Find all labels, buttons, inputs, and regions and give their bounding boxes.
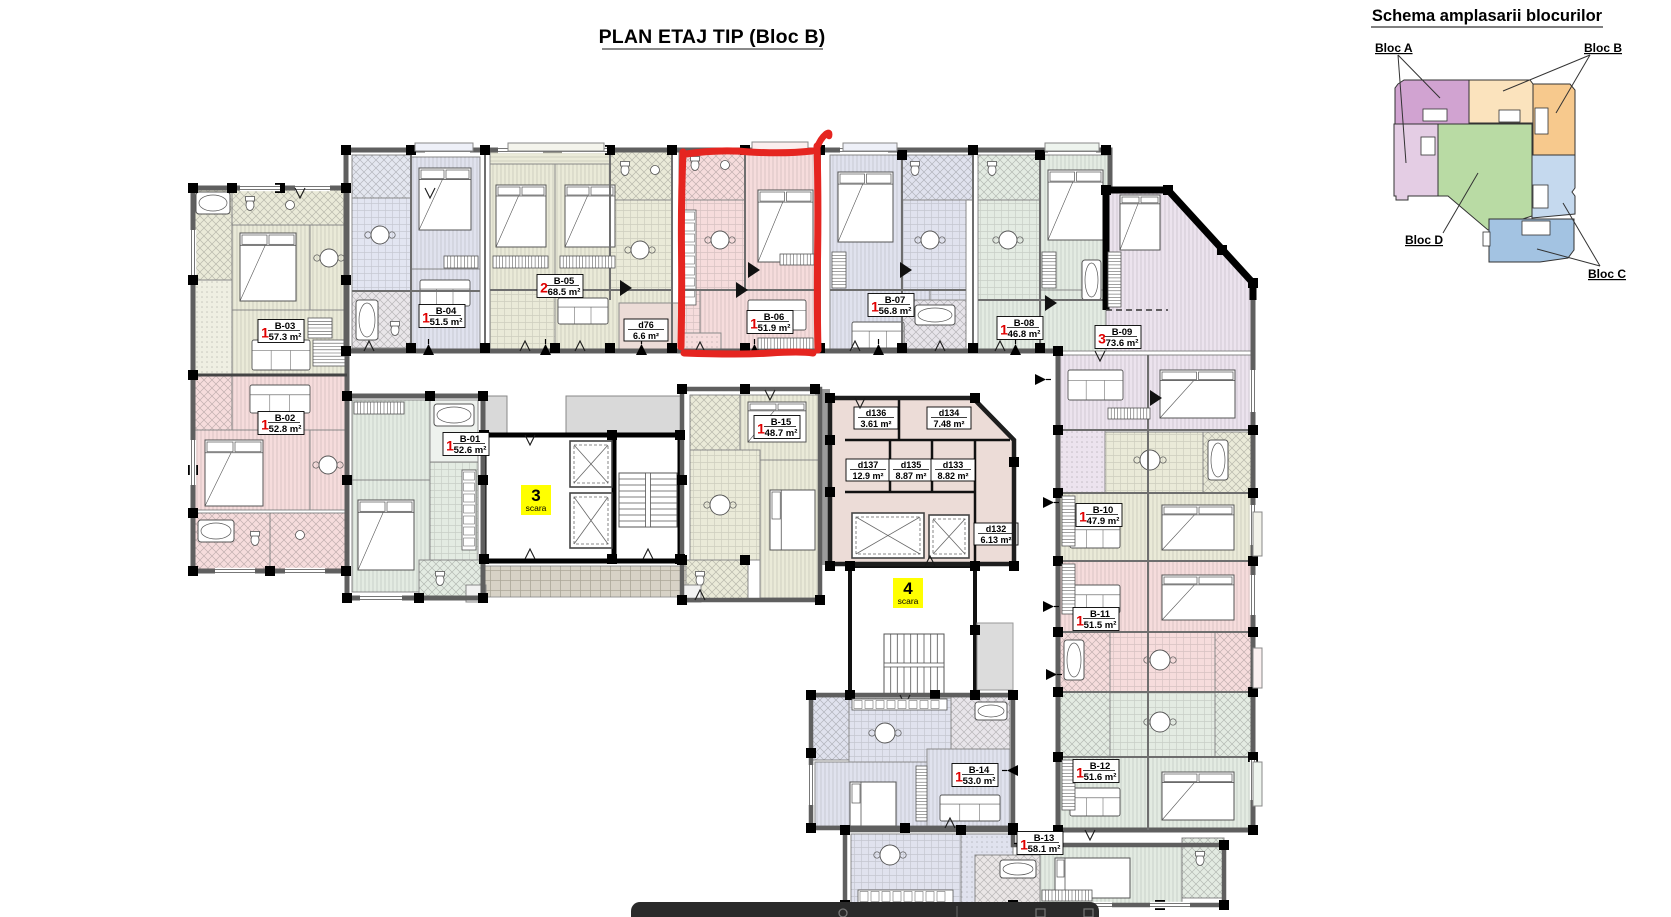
- svg-text:Schema amplasarii blocurilor: Schema amplasarii blocurilor: [1372, 7, 1603, 25]
- svg-text:1: 1: [261, 417, 269, 433]
- svg-text:d133: d133: [943, 460, 964, 470]
- svg-text:d136: d136: [866, 408, 887, 418]
- svg-text:1: 1: [871, 299, 879, 315]
- svg-text:1: 1: [1079, 509, 1087, 525]
- svg-text:51.6 m²: 51.6 m²: [1084, 772, 1117, 783]
- svg-text:51.9 m²: 51.9 m²: [758, 323, 791, 334]
- svg-text:d76: d76: [638, 320, 654, 330]
- svg-text:51.5 m²: 51.5 m²: [430, 317, 463, 328]
- svg-text:1: 1: [446, 438, 454, 454]
- svg-text:1: 1: [422, 310, 430, 326]
- svg-text:1: 1: [1000, 322, 1008, 338]
- svg-text:1: 1: [757, 421, 765, 437]
- svg-text:51.5 m²: 51.5 m²: [1084, 620, 1117, 631]
- svg-text:scara: scara: [526, 503, 547, 513]
- svg-text:d135: d135: [901, 460, 922, 470]
- svg-text:68.5 m²: 68.5 m²: [548, 287, 581, 298]
- svg-text:2: 2: [540, 280, 548, 296]
- svg-text:73.6 m²: 73.6 m²: [1106, 338, 1139, 349]
- svg-text:57.3 m²: 57.3 m²: [269, 332, 302, 343]
- svg-text:Bloc A: Bloc A: [1375, 41, 1413, 55]
- svg-text:1: 1: [261, 325, 269, 341]
- svg-text:56.8 m²: 56.8 m²: [879, 306, 912, 317]
- svg-text:12.9 m²: 12.9 m²: [852, 471, 883, 481]
- svg-text:d134: d134: [939, 408, 960, 418]
- svg-text:6.6 m²: 6.6 m²: [633, 331, 659, 341]
- svg-text:1: 1: [750, 316, 758, 332]
- svg-text:d132: d132: [986, 524, 1007, 534]
- svg-text:1: 1: [1076, 613, 1084, 629]
- svg-text:Bloc C: Bloc C: [1588, 267, 1626, 281]
- svg-text:8.87 m²: 8.87 m²: [895, 471, 926, 481]
- svg-text:6.13 m²: 6.13 m²: [980, 535, 1011, 545]
- svg-text:Bloc B: Bloc B: [1584, 41, 1622, 55]
- svg-text:1: 1: [1020, 837, 1028, 853]
- svg-text:48.7 m²: 48.7 m²: [765, 428, 798, 439]
- svg-text:3: 3: [1098, 331, 1106, 347]
- svg-text:Bloc D: Bloc D: [1405, 233, 1443, 247]
- svg-text:58.1 m²: 58.1 m²: [1028, 844, 1061, 855]
- svg-text:scara: scara: [898, 596, 919, 606]
- svg-text:1: 1: [1076, 765, 1084, 781]
- svg-text:PLAN ETAJ TIP (Bloc B): PLAN ETAJ TIP (Bloc B): [599, 26, 826, 48]
- svg-text:47.9 m²: 47.9 m²: [1087, 516, 1120, 527]
- svg-text:52.6 m²: 52.6 m²: [454, 445, 487, 456]
- svg-text:8.82 m²: 8.82 m²: [937, 471, 968, 481]
- svg-text:46.8 m²: 46.8 m²: [1008, 329, 1041, 340]
- svg-text:d137: d137: [858, 460, 879, 470]
- svg-text:52.8 m²: 52.8 m²: [269, 424, 302, 435]
- svg-text:1: 1: [955, 769, 963, 785]
- svg-text:7.48 m²: 7.48 m²: [933, 419, 964, 429]
- svg-text:3.61 m²: 3.61 m²: [860, 419, 891, 429]
- svg-text:53.0 m²: 53.0 m²: [963, 776, 996, 787]
